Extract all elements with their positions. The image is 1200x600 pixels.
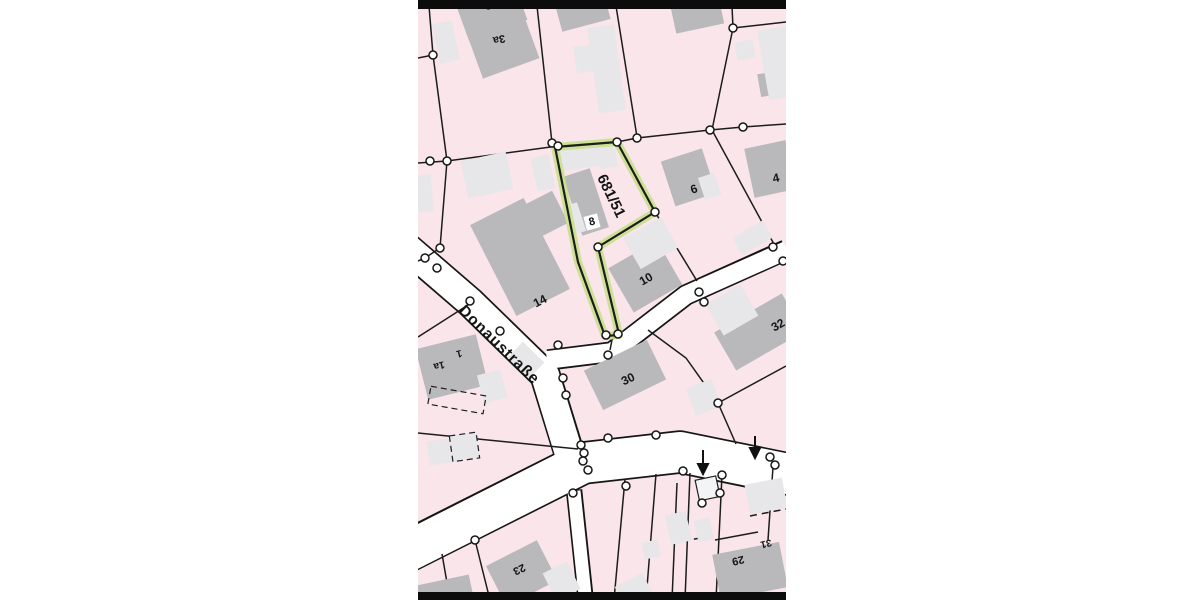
left-margin [0, 0, 418, 600]
frame-top-bar [418, 0, 786, 9]
survey-point [569, 489, 577, 497]
survey-point [604, 434, 612, 442]
survey-point [433, 264, 441, 272]
frame-bottom-bar [418, 592, 786, 600]
survey-point [651, 208, 659, 216]
survey-point [695, 288, 703, 296]
building-planned-dashed [449, 432, 479, 462]
survey-point [436, 244, 444, 252]
scanned-cadastral-map-page: Donaustraße 681/51 3 3a 8 6 4 10 14 30 3… [0, 0, 1200, 600]
cadastral-map: Donaustraße 681/51 3 3a 8 6 4 10 14 30 3… [0, 0, 1200, 600]
survey-point [443, 157, 451, 165]
survey-point [716, 489, 724, 497]
survey-point [613, 138, 621, 146]
survey-point [584, 466, 592, 474]
survey-point [429, 51, 437, 59]
survey-point [471, 536, 479, 544]
survey-point [604, 351, 612, 359]
survey-point [421, 254, 429, 262]
survey-point [652, 431, 660, 439]
survey-point [602, 331, 610, 339]
survey-point [622, 482, 630, 490]
survey-point [700, 298, 708, 306]
survey-point [426, 157, 434, 165]
survey-point [706, 126, 714, 134]
survey-point [766, 453, 774, 461]
survey-point [718, 471, 726, 479]
survey-point [577, 441, 585, 449]
survey-point [729, 24, 737, 32]
survey-point [562, 391, 570, 399]
survey-point [580, 449, 588, 457]
right-margin [786, 0, 1200, 600]
survey-point [554, 142, 562, 150]
building-shed [735, 40, 756, 61]
survey-point [769, 243, 777, 251]
survey-point [559, 374, 567, 382]
survey-point [771, 461, 779, 469]
survey-point [614, 330, 622, 338]
survey-point [554, 341, 562, 349]
survey-point [679, 467, 687, 475]
survey-point [633, 134, 641, 142]
building-outbuilding [573, 43, 602, 73]
building-small-white [695, 476, 720, 501]
survey-point [579, 457, 587, 465]
survey-point [779, 257, 787, 265]
building-shed [426, 438, 452, 465]
survey-point [739, 123, 747, 131]
survey-point [594, 243, 602, 251]
survey-point [698, 499, 706, 507]
survey-point [714, 399, 722, 407]
